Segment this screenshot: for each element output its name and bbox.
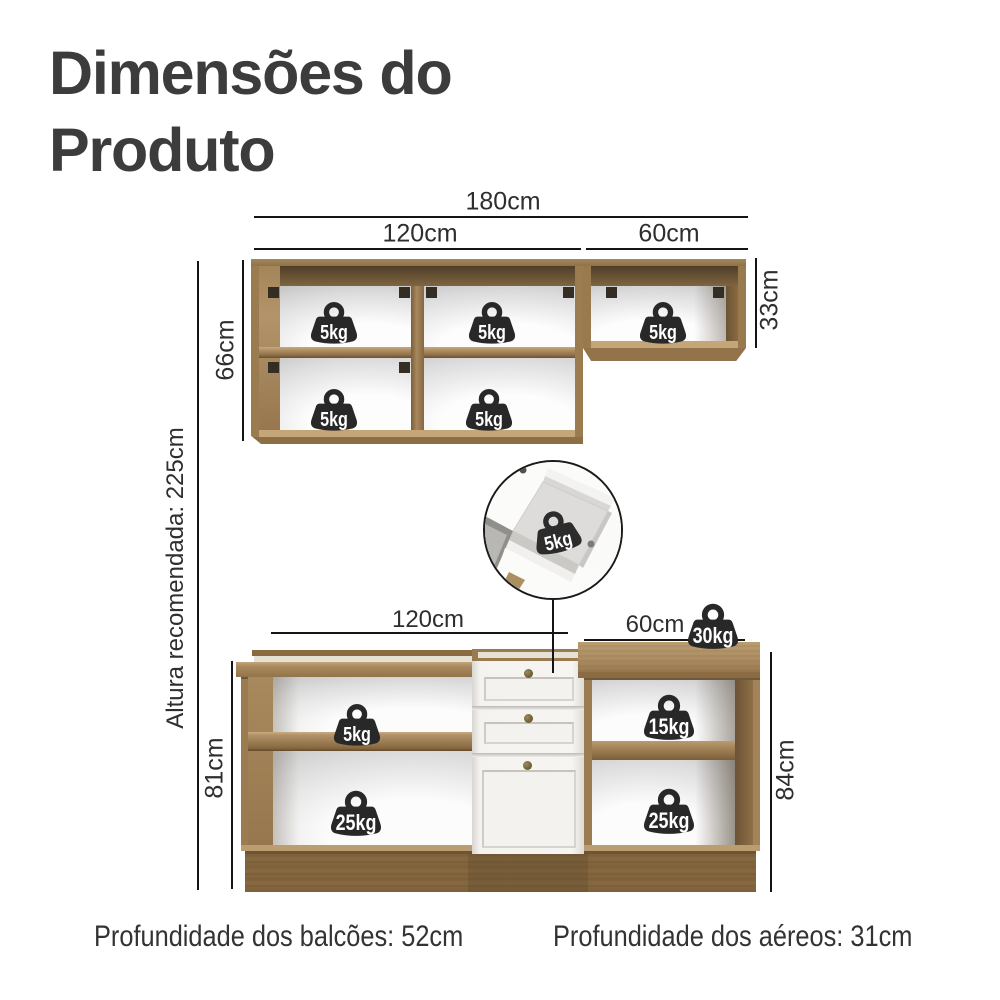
svg-text:5kg: 5kg [475,409,503,431]
svg-text:5kg: 5kg [320,322,348,344]
svg-text:5kg: 5kg [649,322,677,344]
svg-text:15kg: 15kg [649,714,690,739]
svg-text:5kg: 5kg [343,724,371,746]
svg-text:25kg: 25kg [336,810,377,835]
svg-text:5kg: 5kg [320,409,348,431]
svg-text:5kg: 5kg [478,322,506,344]
svg-text:25kg: 25kg [649,808,690,833]
svg-text:30kg: 30kg [693,623,734,648]
